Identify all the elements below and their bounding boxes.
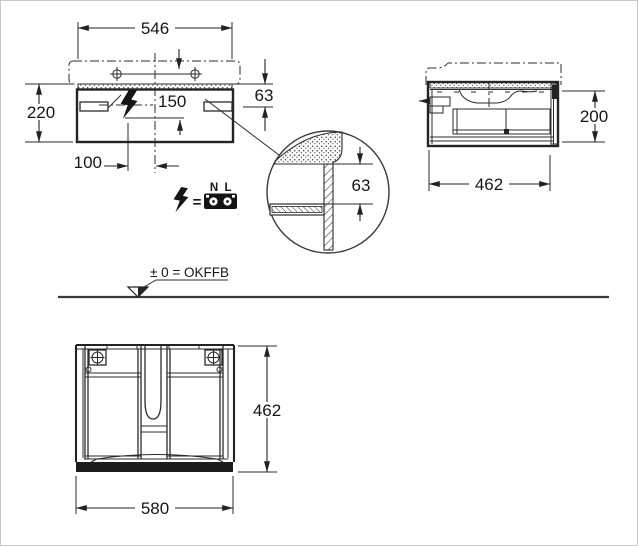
dim-rim-height: 63 — [235, 59, 278, 131]
fixing-point-icon — [110, 67, 124, 81]
dim-side-depth: 462 — [429, 150, 550, 194]
drawer-compartment — [85, 346, 141, 458]
dim-side-height: 200 — [562, 91, 615, 142]
front-view: 546 220 63 150 100 — [22, 19, 279, 173]
equals-sign: = — [193, 194, 202, 211]
wall-bracket — [419, 97, 450, 113]
cabinet-wall-section — [324, 164, 333, 250]
basin-rim-section — [430, 82, 556, 88]
hinge-bracket-icon — [89, 350, 106, 365]
side-view: 200 462 — [419, 63, 615, 194]
level-marker-icon — [128, 287, 148, 297]
level-label-line — [144, 280, 228, 287]
dim-basin-width-label: 546 — [141, 19, 169, 38]
dim-rail-offset-label: 63 — [352, 176, 371, 195]
basin-front-curve — [97, 455, 217, 460]
ground-level-label: ± 0 = OKFFB — [150, 265, 229, 280]
drawer-compartment — [167, 346, 223, 458]
drawer-handle — [80, 102, 108, 111]
terminal-n-label: N — [210, 182, 218, 194]
front-panel-section — [76, 462, 233, 472]
electrical-legend: = N L — [174, 182, 237, 212]
dim-outlet-offset-left: 100 — [74, 123, 179, 172]
dim-plan-width-label: 580 — [141, 499, 169, 518]
vanity-technical-drawing: 546 220 63 150 100 — [1, 1, 638, 546]
dim-cabinet-height: 220 — [22, 84, 73, 142]
siphon-cutout — [141, 345, 167, 432]
terminal-l-label: L — [224, 182, 231, 194]
terminal-connector-icon — [204, 194, 237, 210]
dim-outlet-left-label: 100 — [74, 153, 102, 172]
dim-cabinet-height-label: 220 — [27, 103, 55, 122]
fixing-point-icon — [188, 67, 202, 81]
basin-bowl-outline — [459, 89, 537, 103]
dim-outlet-offset-center: 150 — [157, 92, 191, 111]
lightning-bolt-icon — [174, 187, 189, 212]
dim-plan-width: 580 — [76, 476, 233, 518]
detail-circle-view: 63 — [267, 131, 389, 253]
ground-level: ± 0 = OKFFB — [58, 265, 609, 297]
lightning-bolt-icon — [121, 89, 138, 119]
dim-side-depth-label: 462 — [475, 175, 503, 194]
drawer-rail-section — [270, 204, 324, 215]
dim-side-height-label: 200 — [580, 107, 608, 126]
technical-drawing-canvas: 546 220 63 150 100 — [0, 0, 638, 546]
dim-outlet-center-label: 150 — [158, 92, 186, 111]
dim-plan-depth-label: 462 — [253, 401, 281, 420]
dim-rim-height-label: 63 — [255, 86, 274, 105]
dim-plan-depth: 462 — [238, 346, 287, 472]
drawer-handle — [204, 102, 232, 111]
drawer-box-side — [453, 109, 550, 134]
plan-view: 462 580 — [76, 345, 287, 518]
